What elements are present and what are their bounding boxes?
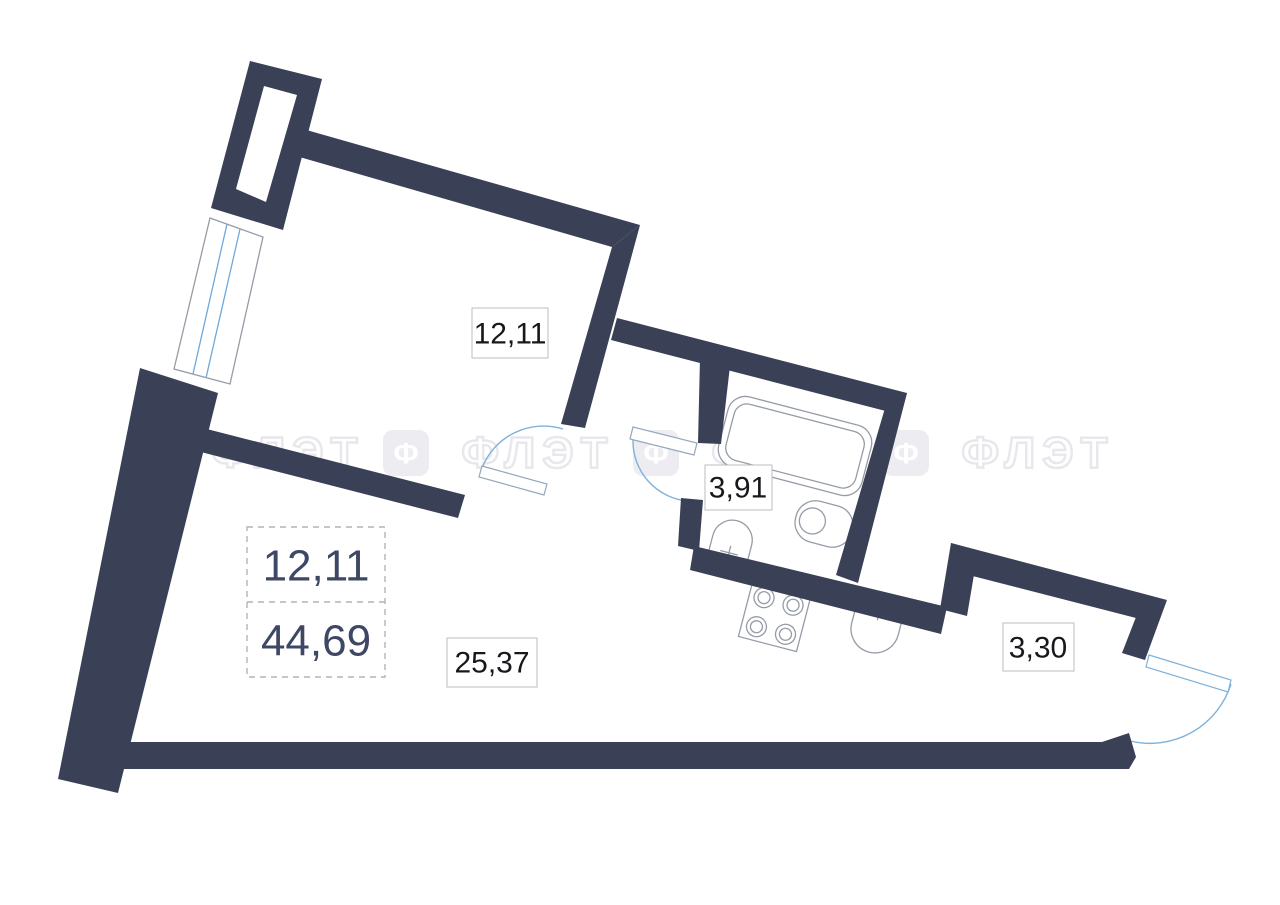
floor-plan-svg: Ф ФЛЭТ Ф ФЛЭТ Ф ФЛЭТ Ф ФЛЭТ xyxy=(0,0,1280,905)
wall-bottom xyxy=(95,733,1136,769)
wall-bathroom-bottom xyxy=(690,546,947,634)
bedroom-area-value: 12,11 xyxy=(474,318,547,351)
labels: 12,11 3,91 3,30 25,37 12,11 44,69 xyxy=(247,308,1074,687)
wall-bathroom-left-lower xyxy=(678,498,703,551)
watermark-brand-text: ФЛЭТ xyxy=(962,429,1115,478)
walls xyxy=(58,61,1167,793)
entrance-door-leaf xyxy=(1146,655,1231,692)
bedroom-area-label: 12,11 xyxy=(472,308,548,358)
summary-total-area: 44,69 xyxy=(261,617,371,666)
window-glass-line xyxy=(206,229,240,378)
hall-area-label: 3,30 xyxy=(1003,623,1074,671)
watermark-tile: Ф ФЛЭТ xyxy=(883,429,1114,478)
wall-top xyxy=(296,129,640,247)
watermark-logo-glyph: Ф xyxy=(893,438,919,471)
window xyxy=(174,218,263,384)
entrance-door-arc xyxy=(1130,684,1231,743)
watermark-logo-glyph: Ф xyxy=(393,438,419,471)
summary-living-area: 12,11 xyxy=(263,542,370,591)
hall-area-value: 3,30 xyxy=(1009,632,1067,665)
window-glass-line xyxy=(193,224,227,374)
wall-left xyxy=(58,368,218,793)
wall-hall-top xyxy=(951,543,1167,618)
living-kitchen-area-label: 25,37 xyxy=(447,638,537,687)
summary-box: 12,11 44,69 xyxy=(247,527,385,677)
bathroom-area-label: 3,91 xyxy=(705,465,772,510)
bathroom-area-value: 3,91 xyxy=(709,472,767,505)
floor-plan-page: Ф ФЛЭТ Ф ФЛЭТ Ф ФЛЭТ Ф ФЛЭТ xyxy=(0,0,1280,905)
living-kitchen-area-value: 25,37 xyxy=(454,647,529,680)
window-frame xyxy=(174,218,263,384)
